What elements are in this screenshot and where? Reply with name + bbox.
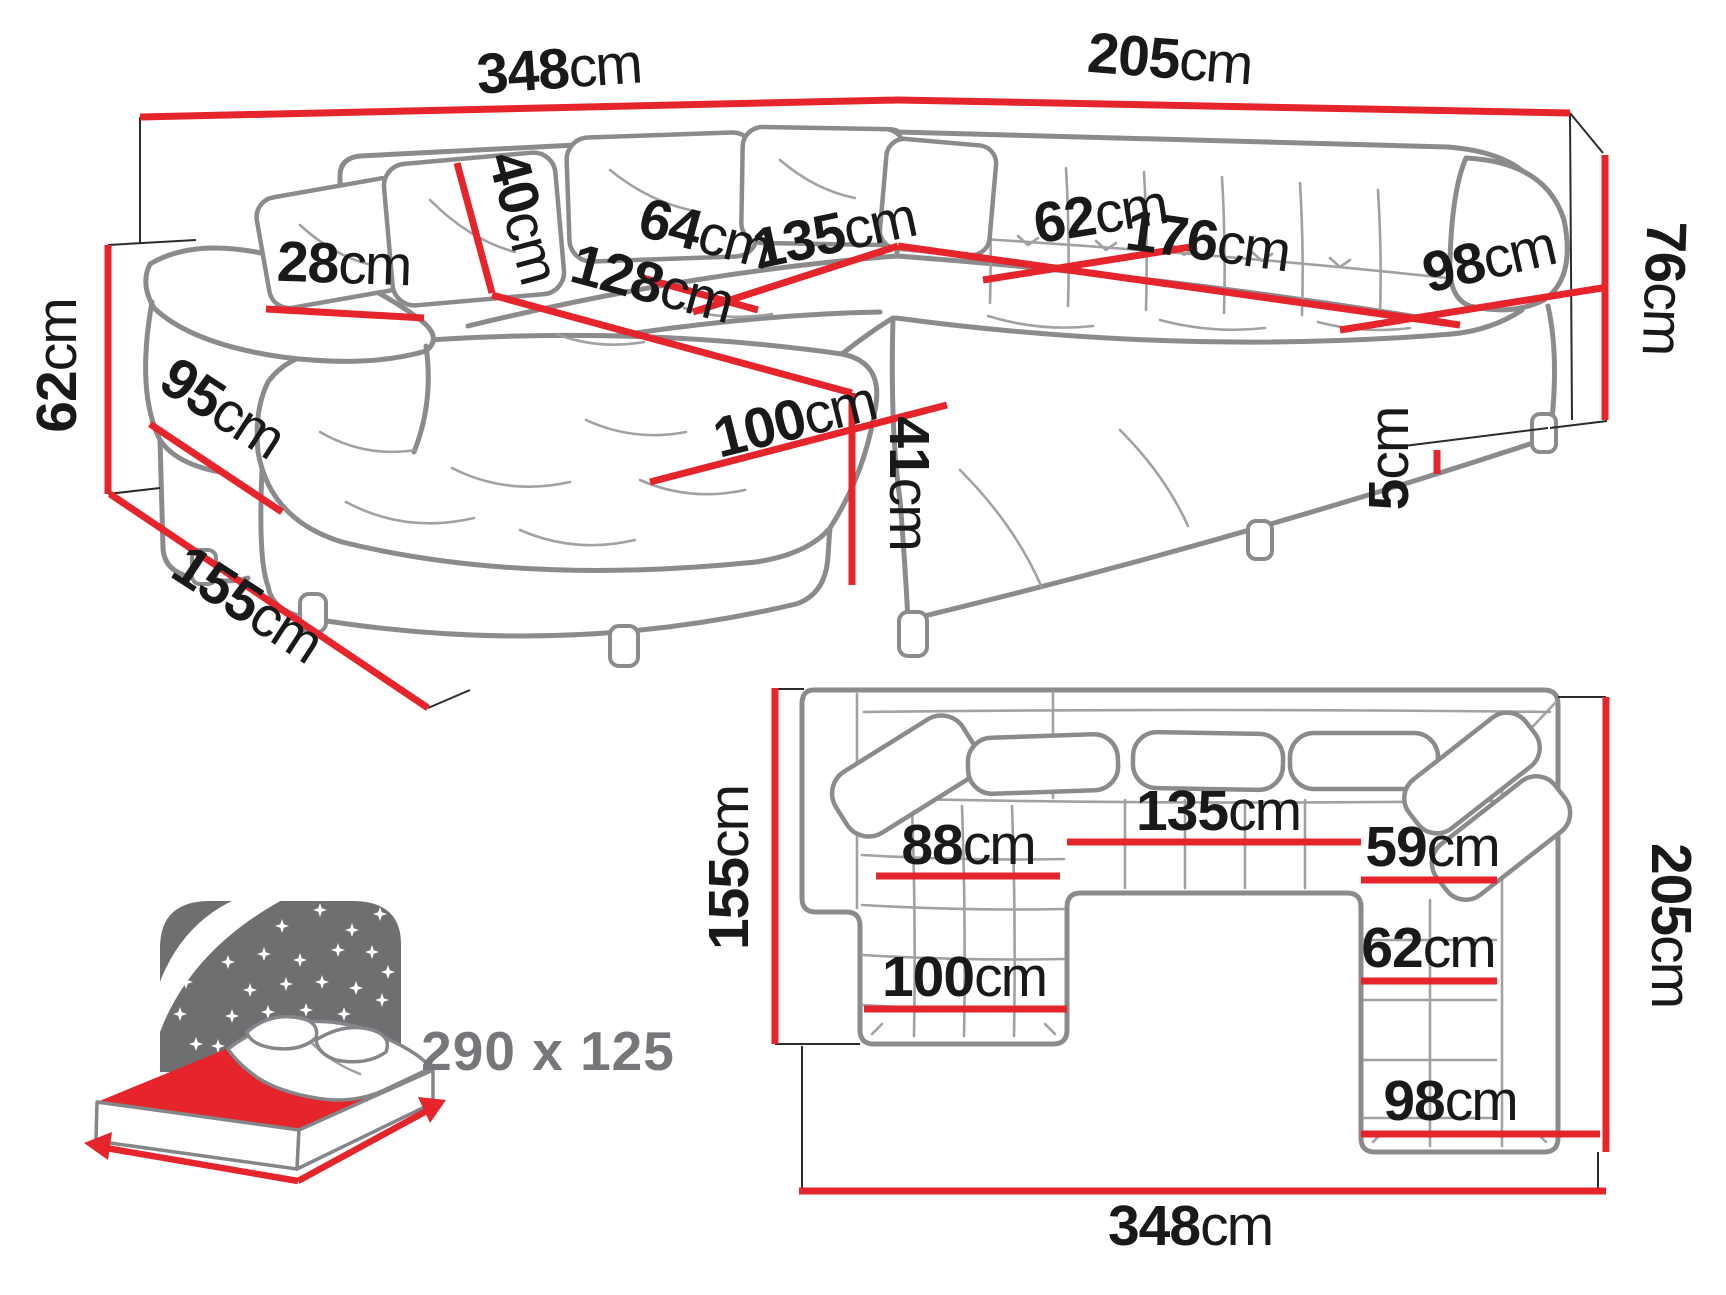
persp-label-chaise-side: 155cm	[161, 533, 333, 676]
plan-label-right-end: 98cm	[1383, 1069, 1516, 1133]
persp-label-leg-height: 5cm	[1357, 408, 1421, 511]
persp-label-backrest-height: 76cm	[1630, 220, 1699, 356]
bed-size-label: 290 x 125	[421, 1020, 675, 1082]
plan-label-right-depth: 205cm	[1639, 843, 1703, 1007]
persp-label-armrest-width: 28cm	[276, 230, 412, 299]
plan-label-middle-width: 135cm	[1136, 779, 1300, 843]
persp-label-arm-height: 62cm	[25, 299, 89, 432]
plan-label-total-width: 348cm	[1108, 1194, 1272, 1258]
plan-label-chaise-width: 100cm	[882, 945, 1046, 1009]
perspective-view: 348cm 205cm 76cm 40cm 28cm 62cm 95cm 155…	[25, 21, 1698, 708]
sofa-dimension-diagram: 348cm 205cm 76cm 40cm 28cm 62cm 95cm 155…	[0, 0, 1726, 1295]
plan-view: 155cm 205cm 348cm 88cm 135cm 59cm 62cm 9…	[697, 688, 1703, 1258]
diagram-canvas: 348cm 205cm 76cm 40cm 28cm 62cm 95cm 155…	[0, 0, 1726, 1295]
plan-label-inner-lower: 62cm	[1361, 916, 1494, 980]
bed-pillow-right	[316, 1028, 387, 1062]
persp-dim-right-side-line	[898, 100, 1570, 113]
persp-label-right-side: 205cm	[1085, 21, 1254, 98]
persp-label-seat-height: 41cm	[877, 416, 941, 549]
persp-label-back-width: 348cm	[475, 31, 643, 106]
plan-label-chaise-inner: 88cm	[901, 813, 1034, 877]
sleep-function-icon: 290 x 125	[84, 899, 675, 1181]
plan-label-inner-upper: 59cm	[1365, 815, 1498, 879]
plan-label-chaise-depth: 155cm	[697, 786, 761, 950]
